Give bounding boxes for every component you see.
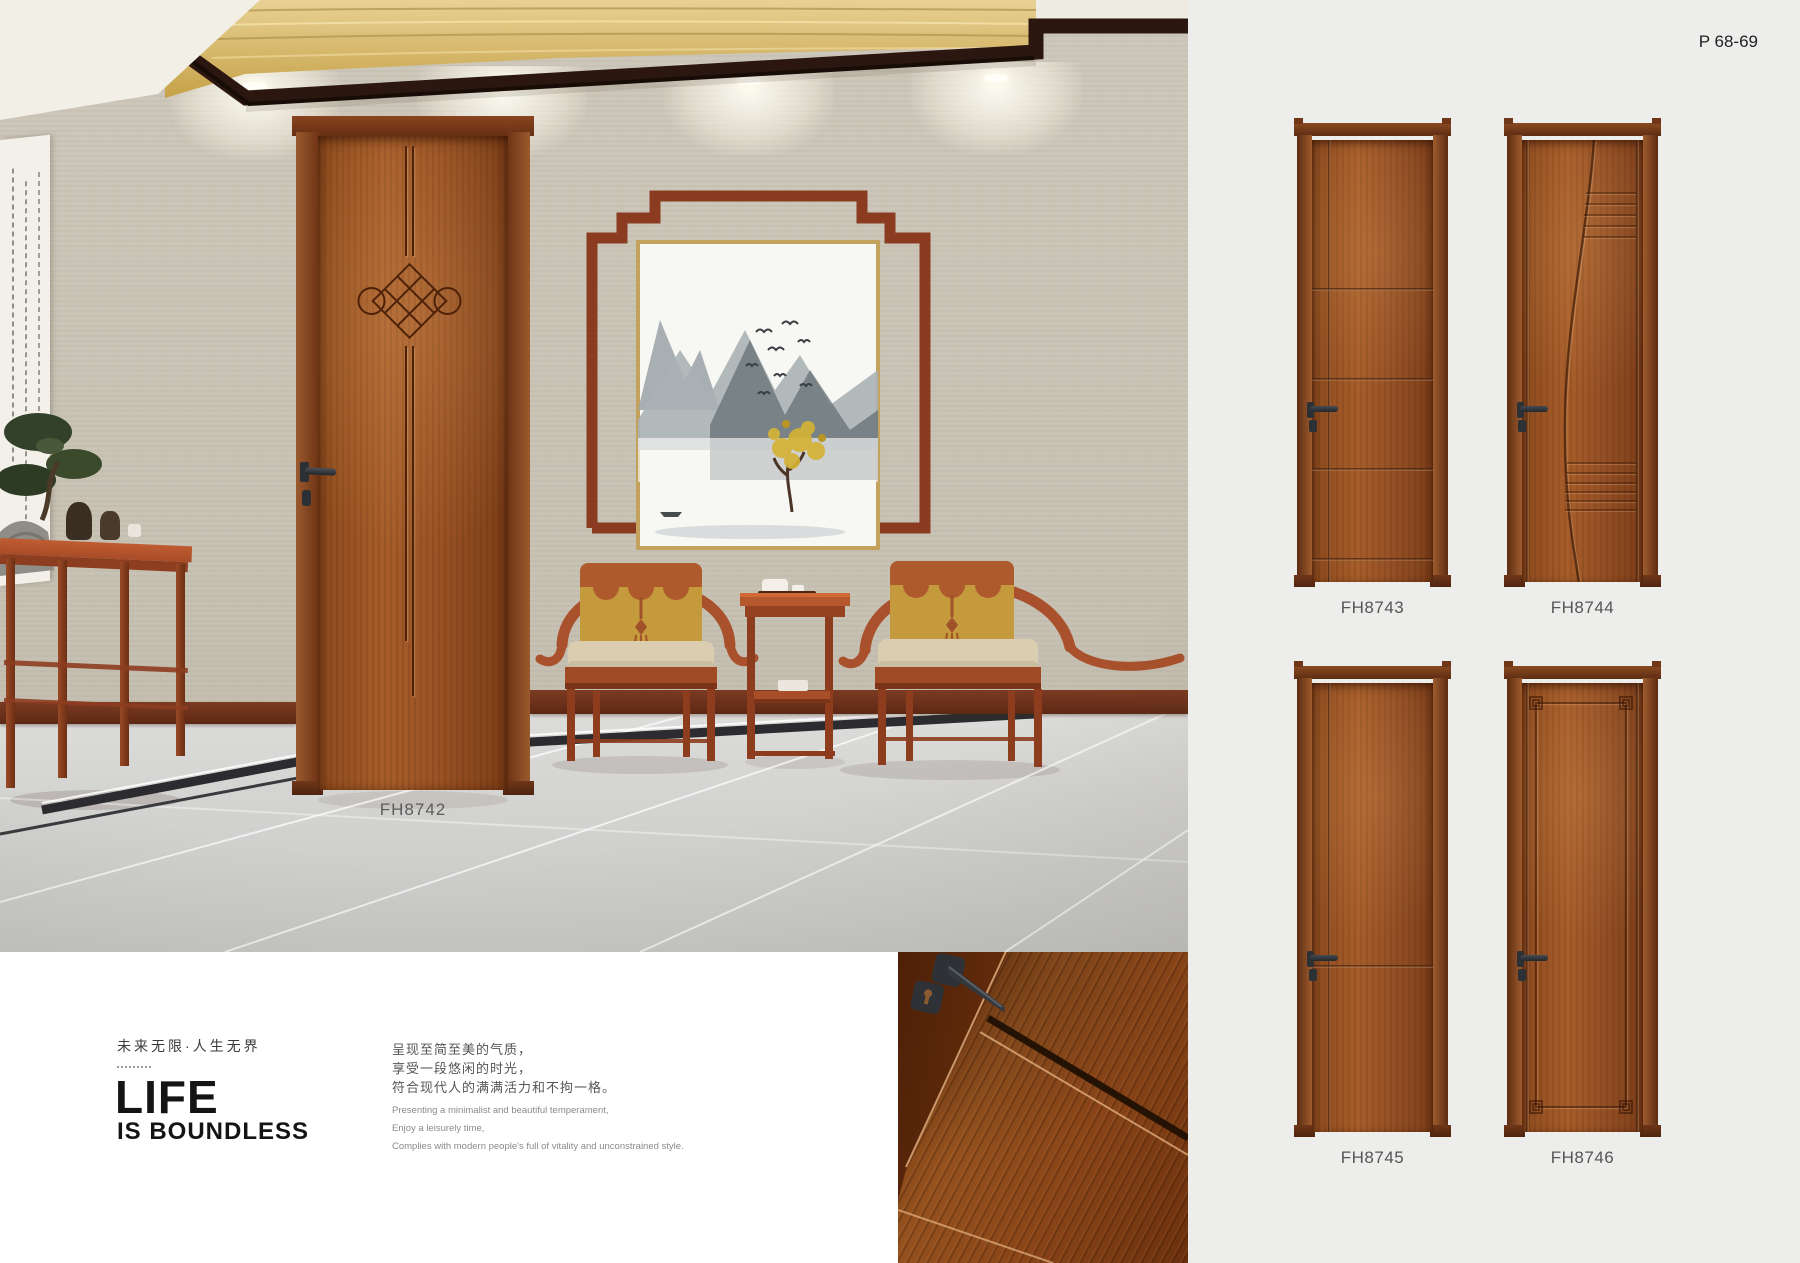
product-code-label: FH8745 <box>1297 1148 1448 1168</box>
console-table <box>0 538 196 792</box>
door-keyhole <box>1518 969 1526 981</box>
door-frame-head <box>1294 123 1451 136</box>
door-leaf <box>318 136 508 790</box>
armchair-right <box>843 561 1180 767</box>
carved-groove <box>1312 558 1433 561</box>
door-keyhole <box>1309 969 1317 981</box>
carved-groove <box>1312 468 1433 471</box>
ceiling-cove <box>0 0 1188 150</box>
door-keyhole <box>1309 420 1317 432</box>
door-frame-jamb <box>1297 135 1312 587</box>
description-zh: 呈现至简至美的气质， 享受一段悠闲的时光， 符合现代人的满满活力和不拘一格。 <box>392 1040 616 1097</box>
door-frame-head <box>1504 123 1661 136</box>
product-code-label: FH8746 <box>1507 1148 1658 1168</box>
vase <box>66 502 92 540</box>
carved-groove <box>1312 378 1433 381</box>
door-leaf <box>1312 683 1433 1132</box>
border-carving <box>1522 683 1643 1132</box>
door-keyhole <box>1518 420 1526 432</box>
door-handle <box>1520 406 1548 412</box>
door-leaf <box>1522 683 1643 1132</box>
carved-groove <box>1328 140 1331 582</box>
door-frame-jamb <box>1643 678 1658 1137</box>
console-leg <box>176 564 185 756</box>
room-scene-photo: FH8742 <box>0 0 1188 952</box>
door-frame-jamb <box>1297 678 1312 1137</box>
door-frame-jamb <box>1433 135 1448 587</box>
tagline-zh: 未来无限·人生无界 <box>117 1036 261 1056</box>
product-panel <box>1188 0 1800 1263</box>
console-leg <box>6 558 15 788</box>
teapot <box>762 579 788 593</box>
door-leaf <box>1312 140 1433 582</box>
panel-gap <box>988 1018 1188 1138</box>
handle-detail-photo <box>898 952 1188 1263</box>
product-door-fh8743 <box>1297 123 1448 587</box>
seating-group <box>530 515 1188 790</box>
console-stretcher <box>4 698 188 710</box>
console-stretcher <box>4 660 188 673</box>
door-frame-jamb <box>1433 678 1448 1137</box>
product-door-fh8746 <box>1507 666 1658 1137</box>
dotted-divider <box>117 1066 151 1068</box>
intro-subtitle: IS BOUNDLESS <box>117 1118 309 1146</box>
curve-carving <box>1522 140 1643 582</box>
product-door-fh8745 <box>1297 666 1448 1137</box>
scene-door-model-label: FH8742 <box>296 800 530 820</box>
carved-groove <box>1312 288 1433 291</box>
door-frame-jamb <box>1507 678 1522 1137</box>
product-code-label: FH8743 <box>1297 598 1448 618</box>
teacup <box>128 524 141 537</box>
chinese-knot-carving <box>318 136 508 790</box>
door-frame-jamb <box>507 132 530 795</box>
console-leg <box>58 560 67 778</box>
armchair-left <box>540 563 754 761</box>
door-leaf <box>1522 140 1643 582</box>
catalog-page: FH8742 <box>0 0 1800 1263</box>
carved-groove <box>1312 965 1433 968</box>
page-number: P 68-69 <box>1699 32 1758 52</box>
vase <box>100 511 120 540</box>
product-door-fh8744 <box>1507 123 1658 587</box>
door-frame-jamb <box>1507 135 1522 587</box>
tea-table <box>740 579 850 759</box>
door-handle <box>1310 955 1338 961</box>
door-frame-head <box>1504 666 1661 679</box>
door-handle <box>1310 406 1338 412</box>
console-leg <box>120 562 129 766</box>
door-frame-head <box>292 116 534 136</box>
intro-title: LIFE <box>115 1070 219 1124</box>
door-handle <box>1520 955 1548 961</box>
books <box>778 680 808 691</box>
door-frame-head <box>1294 666 1451 679</box>
door-handle-closeup <box>910 952 1015 1028</box>
description-en: Presenting a minimalist and beautiful te… <box>392 1102 684 1156</box>
product-code-label: FH8744 <box>1507 598 1658 618</box>
intro-section: 未来无限·人生无界 LIFE IS BOUNDLESS 呈现至简至美的气质， 享… <box>0 952 898 1263</box>
carved-groove <box>1328 683 1331 1132</box>
door-frame-jamb <box>1643 135 1658 587</box>
door-keyhole <box>302 490 311 506</box>
